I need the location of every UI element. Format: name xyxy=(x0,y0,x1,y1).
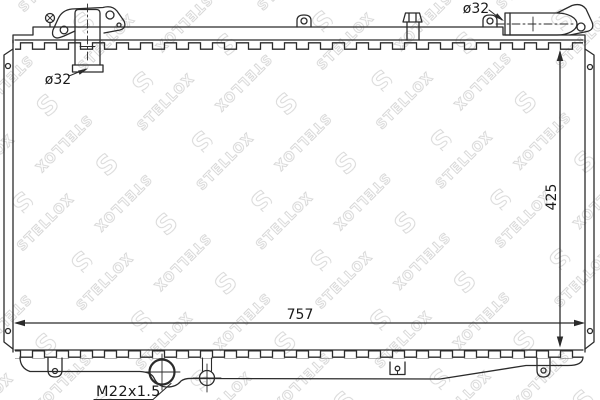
core-height-dimension-label: 425 xyxy=(544,184,560,211)
inlet-diameter-label: ø32 xyxy=(463,1,489,17)
outlet-diameter-label: ø32 xyxy=(45,72,71,88)
stellox-watermark xyxy=(0,0,600,400)
drawing-canvas: STELLOX S STELLOX S xyxy=(0,0,600,400)
radiator-technical-drawing: STELLOX S STELLOX S xyxy=(0,0,600,400)
drain-thread-label: M22x1.5 xyxy=(96,384,161,400)
bottom-crimp-teeth xyxy=(15,351,583,359)
core-width-dimension-label: 757 xyxy=(287,307,314,323)
